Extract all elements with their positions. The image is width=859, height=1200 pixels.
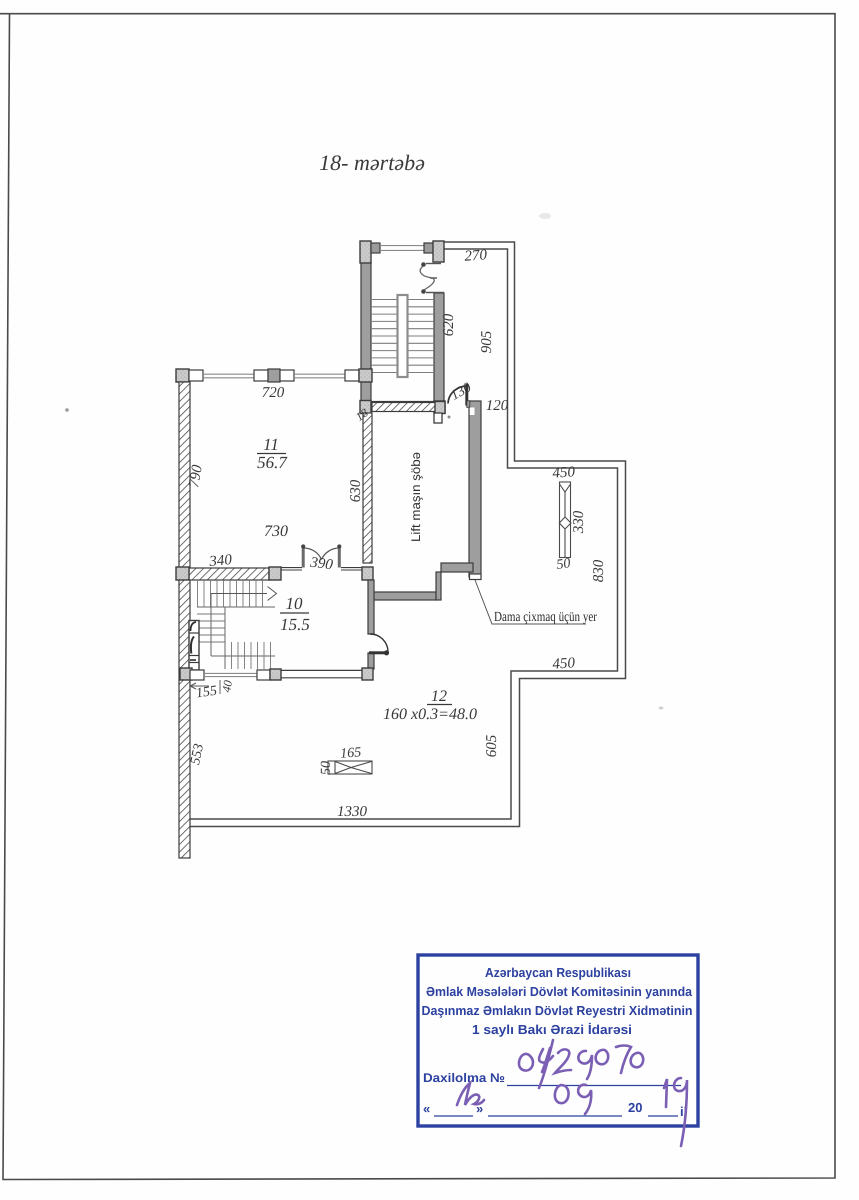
- svg-text:Azərbaycan Respublikası: Azərbaycan Respublikası: [485, 965, 631, 980]
- svg-text:340: 340: [208, 552, 233, 570]
- svg-text:120: 120: [486, 398, 509, 414]
- svg-text:56.7: 56.7: [257, 453, 288, 472]
- svg-text:20: 20: [628, 1100, 642, 1115]
- svg-text:830: 830: [591, 559, 607, 582]
- svg-text:50: 50: [556, 556, 572, 573]
- svg-text:730: 730: [264, 523, 288, 540]
- svg-text:18- mərtəbə: 18- mərtəbə: [319, 150, 425, 175]
- svg-text:130: 130: [448, 380, 474, 403]
- svg-text:Əmlak Məsələləri Dövlət Komitə: Əmlak Məsələləri Dövlət Komitəsinin yanı…: [426, 984, 693, 999]
- svg-text:12: 12: [431, 688, 447, 705]
- svg-text:160 x0.3=48.0: 160 x0.3=48.0: [383, 706, 477, 723]
- svg-text:450: 450: [552, 655, 576, 673]
- svg-text:1330: 1330: [337, 804, 368, 820]
- svg-text:50: 50: [319, 761, 334, 775]
- svg-text:390: 390: [308, 555, 334, 574]
- svg-text:11: 11: [263, 435, 279, 454]
- svg-text:720: 720: [262, 385, 285, 401]
- svg-text:40: 40: [219, 679, 235, 693]
- svg-text:620: 620: [441, 313, 457, 336]
- svg-text:155: 155: [195, 684, 218, 702]
- svg-text:Dama çixmaq üçün yer: Dama çixmaq üçün yer: [494, 610, 597, 625]
- svg-text:«: «: [423, 1101, 430, 1116]
- svg-text:10: 10: [286, 594, 304, 613]
- svg-text:165: 165: [340, 745, 362, 761]
- svg-text:790: 790: [186, 463, 206, 488]
- svg-text:630: 630: [348, 479, 364, 502]
- svg-text:450: 450: [552, 464, 576, 482]
- svg-text:15.5: 15.5: [280, 615, 310, 634]
- svg-text:Daxilolma №: Daxilolma №: [423, 1071, 505, 1085]
- svg-text:Daşınmaz Əmlakın Dövlət Reyest: Daşınmaz Əmlakın Dövlət Reyestri Xidməti…: [422, 1003, 693, 1018]
- svg-text:605: 605: [484, 734, 500, 757]
- svg-text:1 saylı Bakı Ərazi İdarəsi: 1 saylı Bakı Ərazi İdarəsi: [472, 1022, 632, 1037]
- svg-text:Lift maşın şöbə: Lift maşın şöbə: [409, 452, 423, 542]
- svg-text:905: 905: [479, 330, 495, 353]
- svg-text:270: 270: [464, 247, 488, 265]
- svg-text:330: 330: [571, 510, 587, 534]
- svg-text:553: 553: [188, 742, 207, 766]
